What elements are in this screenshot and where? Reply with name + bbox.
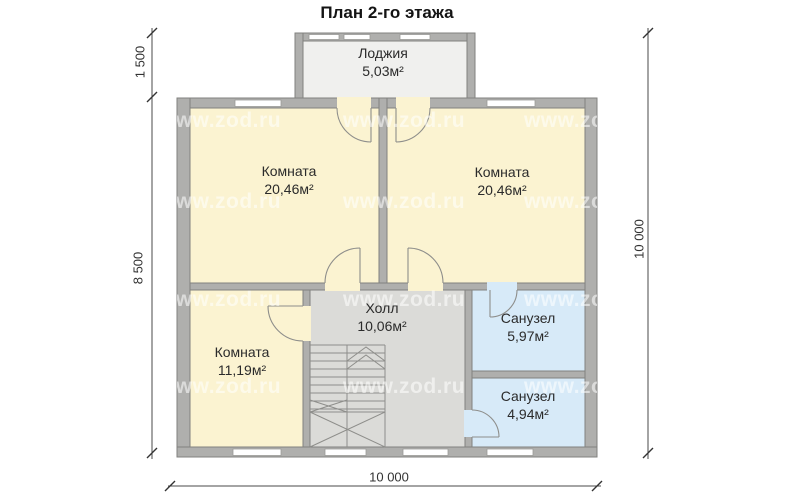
window [487, 100, 535, 107]
doorway-hall-room-left [325, 282, 360, 291]
window [487, 449, 533, 456]
doorway-loggia-room-right [396, 97, 430, 109]
room-name: Санузел [501, 387, 556, 405]
room-name: Лоджия [358, 44, 408, 62]
doorway-hall-bathroom-upper [487, 282, 517, 291]
floor-plan-page: План 2-го этажа [0, 0, 795, 496]
doorway-loggia-room-left [337, 97, 371, 109]
room-label-bathroom-lower: Санузел 4,94м² [501, 387, 556, 423]
doorway-hall-bathroom-lower [464, 410, 473, 437]
room-label-bottom-left: Комната 11,19м² [215, 343, 270, 379]
room-label-top-left: Комната 20,46м² [262, 162, 317, 198]
room-name: Комната [475, 163, 530, 181]
dimension-left-upper: 1 500 [133, 46, 148, 79]
window [400, 35, 430, 40]
loggia-wall-left [295, 33, 303, 98]
window [325, 449, 366, 456]
wall-middle-horizontal [190, 283, 585, 290]
room-area: 20,46м² [475, 181, 530, 199]
wall-between-top-rooms [379, 98, 387, 283]
room-area: 11,19м² [215, 361, 270, 379]
window [309, 35, 339, 40]
exterior-wall-right [585, 98, 597, 457]
room-name: Комната [215, 343, 270, 361]
loggia-wall-right [467, 33, 475, 98]
wall-between-bathrooms [472, 371, 585, 378]
room-area: 5,03м² [358, 62, 408, 80]
window [235, 100, 281, 107]
window [344, 35, 370, 40]
room-label-hall: Холл 10,06м² [357, 299, 406, 335]
window [233, 449, 281, 456]
room-label-top-right: Комната 20,46м² [475, 163, 530, 199]
room-area: 5,97м² [501, 327, 556, 345]
room-name: Холл [357, 299, 406, 317]
room-label-bathroom-upper: Санузел 5,97м² [501, 309, 556, 345]
exterior-wall-left [177, 98, 190, 457]
doorway-hall-room-bottom [302, 306, 311, 341]
room-label-loggia: Лоджия 5,03м² [358, 44, 408, 80]
window [403, 449, 448, 456]
room-area: 20,46м² [262, 180, 317, 198]
dimension-left-lower: 8 500 [131, 252, 146, 285]
dimension-bottom: 10 000 [369, 470, 409, 485]
room-area: 10,06м² [357, 317, 406, 335]
doorway-hall-room-right [408, 282, 443, 291]
room-area: 4,94м² [501, 405, 556, 423]
dimension-right: 10 000 [632, 219, 647, 259]
room-name: Комната [262, 162, 317, 180]
room-name: Санузел [501, 309, 556, 327]
